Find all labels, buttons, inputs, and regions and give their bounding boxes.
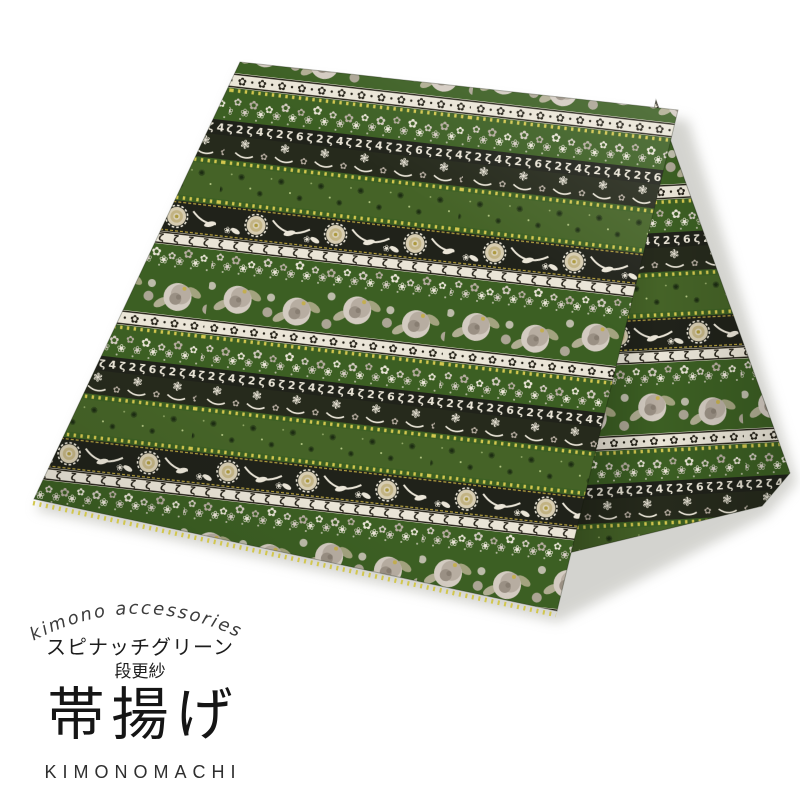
color-name: スピナッチグリーン [12, 634, 268, 660]
brand-logo-text: KIMONOMACHI [12, 762, 268, 783]
product-name: 帯揚げ [12, 686, 268, 745]
product-image-canvas: ✿✿✿✿✿✿✿✿✿✿✿✿✿❀✿❀✿❀✿❀✿❀✿❀✿❀✿❀✿❀✿❀✿❀✿❀✿❀✿❀… [0, 0, 800, 800]
product-label-block: kimono accessories スピナッチグリーン 段更紗 帯揚げ KIM… [12, 584, 268, 783]
pattern-name: 段更紗 [12, 662, 268, 682]
